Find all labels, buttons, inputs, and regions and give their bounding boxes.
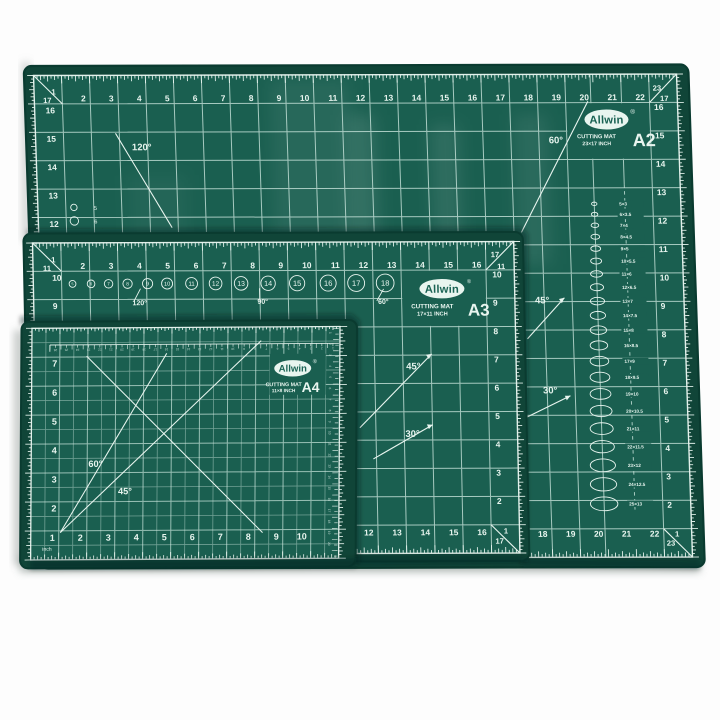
- svg-text:8×4.5: 8×4.5: [620, 234, 632, 239]
- svg-text:9: 9: [661, 301, 666, 311]
- svg-text:14×7.5: 14×7.5: [623, 313, 638, 318]
- svg-text:16: 16: [654, 102, 664, 112]
- svg-text:16: 16: [164, 347, 168, 351]
- svg-text:1: 1: [328, 332, 332, 334]
- svg-text:3: 3: [109, 93, 114, 103]
- svg-text:6: 6: [495, 383, 500, 393]
- svg-text:13: 13: [48, 191, 58, 201]
- svg-text:5: 5: [165, 93, 170, 103]
- svg-text:12: 12: [658, 216, 668, 226]
- svg-text:7: 7: [265, 347, 267, 351]
- svg-text:12: 12: [49, 219, 59, 229]
- svg-text:6: 6: [663, 386, 668, 396]
- svg-text:24: 24: [76, 348, 80, 352]
- svg-text:5: 5: [287, 347, 289, 351]
- svg-text:5: 5: [664, 414, 669, 424]
- svg-text:2: 2: [497, 496, 502, 506]
- svg-text:10: 10: [164, 282, 170, 288]
- svg-text:4: 4: [134, 532, 139, 542]
- svg-text:7: 7: [222, 260, 227, 270]
- svg-text:1: 1: [50, 533, 55, 543]
- svg-text:7: 7: [221, 93, 226, 103]
- svg-text:4: 4: [665, 443, 670, 453]
- svg-text:12: 12: [212, 281, 220, 288]
- svg-text:15: 15: [655, 130, 665, 140]
- svg-text:12: 12: [359, 260, 369, 270]
- svg-text:5: 5: [495, 411, 500, 421]
- svg-text:18: 18: [538, 529, 548, 539]
- svg-text:9: 9: [243, 347, 245, 351]
- svg-text:9: 9: [493, 298, 498, 308]
- svg-text:15×8: 15×8: [623, 328, 634, 333]
- svg-text:13: 13: [384, 93, 394, 103]
- svg-text:15: 15: [46, 134, 56, 144]
- svg-text:12: 12: [364, 527, 374, 537]
- svg-text:14: 14: [187, 347, 191, 351]
- svg-text:13: 13: [657, 187, 667, 197]
- svg-text:45°: 45°: [535, 295, 550, 306]
- svg-text:4: 4: [137, 93, 142, 103]
- svg-text:13: 13: [237, 281, 245, 288]
- svg-text:120°: 120°: [132, 142, 152, 153]
- svg-text:21: 21: [622, 529, 632, 539]
- svg-text:22×11.5: 22×11.5: [627, 444, 644, 449]
- svg-text:13: 13: [198, 347, 202, 351]
- svg-text:®: ®: [630, 108, 635, 116]
- svg-text:13: 13: [392, 527, 402, 537]
- svg-text:10: 10: [302, 260, 312, 270]
- svg-text:5: 5: [94, 206, 97, 212]
- svg-text:9: 9: [277, 93, 282, 103]
- svg-text:10: 10: [52, 273, 62, 283]
- svg-text:10: 10: [231, 347, 235, 351]
- svg-text:20: 20: [579, 92, 589, 102]
- svg-text:3: 3: [106, 533, 111, 543]
- svg-text:17×11 INCH: 17×11 INCH: [417, 312, 448, 318]
- svg-text:8: 8: [493, 326, 498, 336]
- svg-text:60°: 60°: [378, 298, 389, 306]
- svg-text:3: 3: [109, 261, 114, 271]
- svg-text:11: 11: [328, 93, 338, 103]
- svg-text:10×5.5: 10×5.5: [621, 259, 636, 264]
- svg-text:23: 23: [653, 84, 662, 93]
- svg-text:19: 19: [566, 529, 576, 539]
- svg-text:4: 4: [496, 439, 501, 449]
- svg-text:8: 8: [661, 329, 666, 339]
- svg-text:18×9.5: 18×9.5: [625, 375, 640, 380]
- svg-text:17×9: 17×9: [624, 359, 635, 364]
- svg-text:19: 19: [327, 531, 331, 535]
- svg-text:20×10.5: 20×10.5: [626, 409, 643, 414]
- svg-text:4: 4: [137, 261, 142, 271]
- svg-text:21: 21: [607, 92, 617, 102]
- svg-text:14: 14: [421, 527, 431, 537]
- svg-text:10: 10: [297, 531, 307, 541]
- svg-text:30°: 30°: [543, 385, 558, 396]
- svg-text:6: 6: [276, 347, 278, 351]
- svg-text:6: 6: [190, 532, 195, 542]
- svg-text:17: 17: [352, 279, 361, 288]
- svg-text:8: 8: [249, 93, 254, 103]
- svg-text:22: 22: [98, 348, 102, 352]
- svg-text:6: 6: [194, 260, 199, 270]
- svg-text:14: 14: [412, 93, 422, 103]
- svg-text:11×8 INCH: 11×8 INCH: [272, 388, 296, 394]
- svg-text:CUTTING MAT: CUTTING MAT: [411, 303, 454, 310]
- svg-text:2: 2: [80, 261, 85, 271]
- svg-text:19: 19: [131, 348, 135, 352]
- svg-text:11: 11: [331, 260, 340, 270]
- svg-text:9: 9: [53, 301, 58, 311]
- svg-text:3: 3: [52, 474, 57, 484]
- svg-text:20: 20: [327, 542, 331, 546]
- svg-text:8: 8: [126, 282, 129, 288]
- svg-text:11×6: 11×6: [622, 272, 633, 277]
- svg-text:18: 18: [381, 279, 390, 288]
- svg-text:3: 3: [310, 346, 312, 350]
- svg-text:5: 5: [165, 261, 170, 271]
- svg-text:19×10: 19×10: [625, 392, 639, 397]
- svg-text:A3: A3: [468, 301, 490, 320]
- svg-text:14: 14: [264, 279, 272, 288]
- svg-text:11: 11: [220, 347, 224, 351]
- svg-text:18: 18: [142, 347, 146, 351]
- svg-text:6: 6: [193, 93, 198, 103]
- svg-text:6: 6: [52, 388, 57, 398]
- svg-text:13: 13: [327, 464, 331, 468]
- svg-text:1: 1: [332, 346, 334, 350]
- svg-text:18: 18: [523, 92, 533, 102]
- svg-text:22: 22: [650, 529, 660, 539]
- svg-text:7: 7: [662, 358, 667, 368]
- svg-text:16: 16: [45, 105, 55, 115]
- svg-text:6×3.5: 6×3.5: [620, 212, 632, 217]
- svg-text:7: 7: [494, 354, 499, 364]
- svg-text:17: 17: [496, 92, 506, 102]
- svg-text:13: 13: [387, 260, 397, 270]
- svg-text:2: 2: [667, 500, 672, 510]
- svg-text:10: 10: [328, 431, 332, 435]
- svg-text:12×6.5: 12×6.5: [622, 285, 637, 290]
- svg-text:®: ®: [467, 278, 471, 285]
- svg-text:9×5: 9×5: [621, 246, 629, 251]
- svg-text:7: 7: [218, 532, 223, 542]
- svg-text:®: ®: [313, 358, 317, 365]
- svg-text:10: 10: [300, 93, 310, 103]
- svg-text:5: 5: [328, 376, 332, 378]
- svg-text:23: 23: [667, 539, 676, 548]
- svg-text:17: 17: [43, 96, 52, 105]
- svg-text:6: 6: [328, 387, 332, 389]
- svg-text:24×12.5: 24×12.5: [628, 482, 645, 487]
- svg-text:A2: A2: [632, 130, 656, 150]
- svg-text:3: 3: [666, 471, 671, 481]
- svg-text:16: 16: [324, 279, 333, 288]
- svg-text:7: 7: [52, 359, 57, 369]
- svg-text:30°: 30°: [405, 429, 420, 440]
- svg-text:60°: 60°: [88, 459, 102, 469]
- svg-text:11: 11: [328, 442, 332, 446]
- svg-text:inch: inch: [42, 547, 52, 553]
- svg-text:2: 2: [321, 346, 323, 350]
- svg-text:17: 17: [491, 250, 500, 259]
- svg-text:14: 14: [327, 475, 331, 479]
- svg-text:7×4: 7×4: [620, 223, 628, 228]
- svg-text:5: 5: [52, 417, 57, 427]
- svg-text:7: 7: [328, 399, 332, 401]
- svg-text:9: 9: [146, 282, 149, 288]
- svg-text:60°: 60°: [549, 135, 564, 146]
- svg-text:8: 8: [246, 532, 251, 542]
- svg-text:15: 15: [327, 486, 331, 490]
- svg-text:4: 4: [328, 365, 332, 367]
- svg-text:17: 17: [153, 347, 157, 351]
- svg-text:21: 21: [109, 348, 113, 352]
- svg-text:22: 22: [635, 92, 645, 102]
- svg-text:5: 5: [71, 282, 73, 286]
- svg-text:16×8.5: 16×8.5: [624, 343, 639, 348]
- svg-text:16: 16: [477, 527, 487, 537]
- svg-text:8: 8: [328, 410, 332, 412]
- svg-text:11: 11: [659, 244, 669, 254]
- svg-text:A4: A4: [302, 379, 320, 395]
- svg-text:16: 16: [327, 498, 331, 502]
- svg-text:16: 16: [472, 260, 482, 270]
- svg-text:20: 20: [120, 348, 124, 352]
- svg-text:23: 23: [87, 348, 91, 352]
- svg-text:12: 12: [328, 453, 332, 457]
- svg-text:21×11: 21×11: [627, 426, 640, 431]
- svg-text:12: 12: [356, 93, 366, 103]
- svg-text:45°: 45°: [118, 486, 132, 496]
- svg-text:25×13: 25×13: [629, 502, 643, 507]
- svg-text:14: 14: [47, 162, 57, 172]
- svg-text:5: 5: [162, 532, 167, 542]
- svg-text:2: 2: [51, 503, 56, 513]
- svg-text:14: 14: [656, 159, 666, 169]
- svg-text:CUTTING MAT: CUTTING MAT: [577, 134, 616, 140]
- svg-text:17: 17: [327, 509, 331, 513]
- svg-text:5×3: 5×3: [619, 202, 627, 207]
- svg-text:16: 16: [468, 92, 478, 102]
- svg-text:9: 9: [274, 532, 279, 542]
- svg-text:Allwin: Allwin: [279, 364, 307, 375]
- svg-text:14: 14: [415, 260, 425, 270]
- svg-text:19: 19: [551, 92, 561, 102]
- svg-text:2: 2: [81, 93, 86, 103]
- svg-text:25: 25: [64, 348, 68, 352]
- svg-text:15: 15: [293, 279, 302, 288]
- svg-text:23×17 INCH: 23×17 INCH: [582, 141, 611, 147]
- svg-text:11: 11: [43, 264, 52, 273]
- svg-text:45°: 45°: [406, 361, 421, 372]
- svg-text:4: 4: [52, 445, 57, 455]
- svg-text:12: 12: [209, 347, 213, 351]
- svg-text:90°: 90°: [257, 298, 268, 306]
- svg-text:3: 3: [496, 468, 501, 478]
- svg-text:3: 3: [328, 354, 332, 356]
- svg-text:15: 15: [444, 260, 454, 270]
- svg-text:9: 9: [278, 260, 283, 270]
- svg-text:17: 17: [495, 537, 504, 546]
- svg-text:CUTTING MAT: CUTTING MAT: [266, 382, 303, 388]
- svg-text:2: 2: [78, 533, 83, 543]
- svg-text:23×12: 23×12: [628, 463, 642, 468]
- svg-text:Allwin: Allwin: [425, 284, 459, 296]
- svg-text:9: 9: [328, 421, 332, 423]
- svg-text:26: 26: [53, 348, 57, 352]
- svg-text:10: 10: [492, 269, 502, 279]
- svg-text:6: 6: [94, 219, 97, 225]
- svg-text:4: 4: [299, 347, 301, 351]
- svg-text:11: 11: [188, 281, 195, 288]
- svg-text:20: 20: [594, 529, 604, 539]
- svg-text:10: 10: [660, 272, 670, 282]
- svg-text:18: 18: [327, 520, 331, 524]
- svg-text:8: 8: [250, 260, 255, 270]
- svg-text:Allwin: Allwin: [589, 114, 624, 126]
- svg-text:15: 15: [176, 347, 180, 351]
- svg-text:15: 15: [440, 93, 450, 103]
- svg-text:15: 15: [449, 527, 459, 537]
- svg-text:13×7: 13×7: [622, 299, 633, 304]
- svg-text:2: 2: [328, 343, 332, 345]
